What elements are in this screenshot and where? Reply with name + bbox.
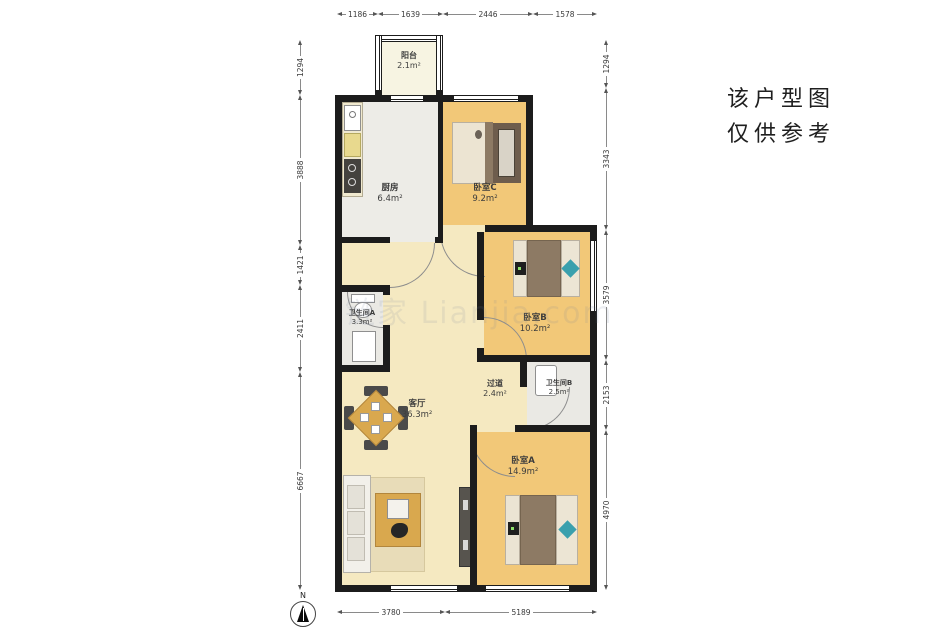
dim-top-3: 2446 bbox=[443, 8, 533, 20]
sink-faucet-icon bbox=[349, 111, 356, 118]
wall bbox=[477, 355, 590, 362]
dim-right-5: 4970 bbox=[600, 430, 612, 590]
label-corridor: 过道2.4m² bbox=[483, 379, 507, 399]
label-living-room: 客厅36.3m² bbox=[402, 399, 433, 420]
sink-icon bbox=[344, 105, 361, 131]
label-bedroom-c: 卧室C9.2m² bbox=[472, 183, 497, 204]
shower-icon bbox=[352, 331, 376, 362]
compass-needle-split bbox=[303, 608, 304, 621]
plate-icon bbox=[371, 425, 380, 434]
bed-blanket bbox=[485, 122, 493, 184]
plate-icon bbox=[360, 413, 369, 422]
kitchen-cabinet-icon bbox=[344, 133, 361, 157]
wall bbox=[526, 95, 533, 232]
window bbox=[436, 35, 443, 91]
disclaimer-line1: 该户型图 bbox=[727, 82, 835, 117]
dim-top-2: 1639 bbox=[378, 8, 443, 20]
floorplan-page: 阳台2.1m² 厨房6.4m² 卧室C9.2m² 卫生间A3.3m² 卧室B10… bbox=[0, 0, 944, 633]
north-label: N bbox=[288, 592, 318, 600]
wall bbox=[435, 237, 443, 243]
plate-icon bbox=[371, 402, 380, 411]
coffee-table-tray bbox=[387, 499, 409, 519]
wall bbox=[485, 225, 533, 232]
dim-left-3: 1421 bbox=[294, 245, 306, 285]
dim-bottom-2: 5189 bbox=[445, 606, 597, 618]
dim-bottom-1: 3780 bbox=[337, 606, 445, 618]
window bbox=[485, 585, 570, 592]
watermark: 链家 Lianjia.com bbox=[345, 288, 595, 332]
wall bbox=[526, 225, 597, 232]
sofa-cushion bbox=[347, 511, 365, 535]
tv-light bbox=[518, 267, 521, 270]
dim-top-4: 1578 bbox=[533, 8, 597, 20]
wall bbox=[470, 432, 477, 585]
plate-icon bbox=[383, 413, 392, 422]
dim-right-2: 3343 bbox=[600, 88, 612, 230]
compass-ring bbox=[290, 601, 316, 627]
window bbox=[375, 35, 443, 42]
sofa-cushion bbox=[347, 485, 365, 509]
window bbox=[390, 585, 458, 592]
tv-light bbox=[511, 527, 514, 530]
label-bathroom-b: 卫生间B2.5m² bbox=[546, 379, 572, 397]
label-kitchen: 厨房6.4m² bbox=[377, 183, 402, 204]
dim-right-4: 2153 bbox=[600, 360, 612, 430]
wall bbox=[515, 425, 597, 432]
bed-blanket bbox=[520, 495, 556, 565]
label-balcony: 阳台2.1m² bbox=[397, 51, 421, 71]
north-arrow-icon: N bbox=[288, 592, 318, 627]
disclaimer-text: 该户型图 仅供参考 bbox=[727, 82, 835, 152]
dim-left-5: 6667 bbox=[294, 372, 306, 590]
wall bbox=[520, 362, 527, 387]
tv-cabinet-item bbox=[463, 540, 468, 550]
label-bedroom-a: 卧室A14.9m² bbox=[508, 456, 539, 477]
sofa-cushion bbox=[347, 537, 365, 561]
dim-left-2: 3888 bbox=[294, 95, 306, 245]
dim-right-3: 3579 bbox=[600, 230, 612, 360]
dim-top-1: 1186 bbox=[337, 8, 378, 20]
wall bbox=[438, 102, 443, 242]
wall bbox=[470, 425, 477, 432]
window bbox=[453, 95, 519, 102]
stove-burner-icon bbox=[348, 164, 356, 172]
wall bbox=[342, 237, 390, 243]
dim-left-4: 2411 bbox=[294, 285, 306, 372]
tv-cabinet-item bbox=[463, 500, 468, 510]
disclaimer-line2: 仅供参考 bbox=[727, 117, 835, 152]
bed-pillow-icon bbox=[475, 130, 482, 139]
stove-burner-icon bbox=[348, 178, 356, 186]
dim-right-1: 1294 bbox=[600, 40, 612, 88]
balcony-door-window bbox=[390, 95, 424, 102]
wall bbox=[335, 95, 342, 592]
window bbox=[375, 35, 382, 91]
dim-left-1: 1294 bbox=[294, 40, 306, 95]
wall bbox=[335, 365, 390, 372]
wardrobe-door bbox=[498, 129, 515, 177]
